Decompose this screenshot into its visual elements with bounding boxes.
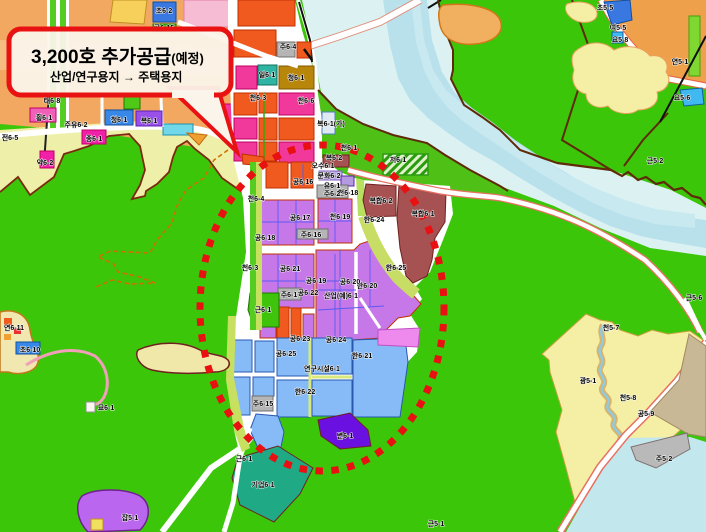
svg-text:근5-2: 근5-2 <box>647 157 664 165</box>
svg-text:일6-1: 일6-1 <box>259 70 276 79</box>
svg-text:주6-4: 주6-4 <box>280 43 297 51</box>
svg-text:공6-24: 공6-24 <box>326 336 347 344</box>
svg-text:천6-3: 천6-3 <box>242 263 259 272</box>
svg-text:오수6-1: 오수6-1 <box>312 162 335 170</box>
svg-text:초5-5: 초5-5 <box>597 3 614 12</box>
svg-text:한6-22: 한6-22 <box>295 387 316 396</box>
svg-text:전6-5: 전6-5 <box>2 133 19 142</box>
svg-text:공5-9: 공5-9 <box>638 410 655 418</box>
svg-text:연5-1: 연5-1 <box>672 57 689 66</box>
svg-text:주6-15: 주6-15 <box>253 400 274 408</box>
svg-text:공6-16: 공6-16 <box>293 178 314 186</box>
svg-text:초6-2: 초6-2 <box>156 6 173 15</box>
svg-text:청6-1: 청6-1 <box>111 115 128 124</box>
svg-text:광5-1: 광5-1 <box>580 376 597 385</box>
svg-text:요5-6: 요5-6 <box>674 94 691 102</box>
svg-text:주5-2: 주5-2 <box>656 455 673 463</box>
svg-text:공6-18: 공6-18 <box>255 234 276 242</box>
svg-text:산업/연구용지 → 주택용지: 산업/연구용지 → 주택용지 <box>50 69 182 84</box>
svg-text:공6-23: 공6-23 <box>290 335 311 343</box>
svg-text:공6-20: 공6-20 <box>340 278 361 286</box>
svg-text:저6-1: 저6-1 <box>390 155 407 164</box>
svg-text:공6-21: 공6-21 <box>280 265 301 273</box>
svg-text:연6-11: 연6-11 <box>4 323 24 332</box>
svg-text:천5-8: 천5-8 <box>620 393 637 402</box>
svg-text:천6-19: 천6-19 <box>330 212 351 221</box>
svg-text:여5-5: 여5-5 <box>610 23 627 32</box>
svg-text:공6-22: 공6-22 <box>298 289 319 297</box>
svg-text:잡5-1: 잡5-1 <box>122 513 139 522</box>
svg-text:주유6-2: 주유6-2 <box>65 120 88 129</box>
svg-text:변6-1: 변6-1 <box>337 431 354 440</box>
svg-text:약6-2: 약6-2 <box>37 158 54 167</box>
svg-text:유6-1: 유6-1 <box>324 181 341 190</box>
svg-text:종6-1: 종6-1 <box>86 135 103 143</box>
svg-text:묘6-1: 묘6-1 <box>98 404 115 412</box>
svg-text:천6-1: 천6-1 <box>341 143 358 152</box>
svg-text:기업6-1: 기업6-1 <box>252 480 275 489</box>
svg-text:복합6-1: 복합6-1 <box>412 209 435 218</box>
svg-text:천6-4: 천6-4 <box>248 194 265 203</box>
svg-text:산업(예)6-1: 산업(예)6-1 <box>324 291 358 300</box>
svg-text:공6-25: 공6-25 <box>276 350 297 358</box>
svg-text:천6-18: 천6-18 <box>338 188 359 197</box>
svg-text:공6-17: 공6-17 <box>290 214 311 222</box>
svg-text:천5-7: 천5-7 <box>603 323 620 332</box>
svg-text:청6-1: 청6-1 <box>288 73 305 82</box>
svg-text:횡6-1: 횡6-1 <box>36 113 53 122</box>
svg-text:한6-21: 한6-21 <box>352 351 373 360</box>
svg-text:공6-19: 공6-19 <box>306 277 327 285</box>
svg-text:천6-3: 천6-3 <box>250 93 267 102</box>
svg-text:근5-1: 근5-1 <box>428 520 445 528</box>
svg-text:복6-1(가): 복6-1(가) <box>317 119 345 128</box>
svg-text:주6-2: 주6-2 <box>324 190 341 198</box>
svg-text:천6-6: 천6-6 <box>298 96 315 105</box>
svg-text:주6-1: 주6-1 <box>281 291 298 299</box>
svg-text:초6-10: 초6-10 <box>20 345 41 354</box>
svg-text:연구시설6-1: 연구시설6-1 <box>304 364 340 373</box>
svg-text:한6-25: 한6-25 <box>386 263 407 272</box>
svg-text:주6-16: 주6-16 <box>301 231 322 239</box>
svg-text:한6-24: 한6-24 <box>364 215 385 224</box>
svg-text:복합6-2: 복합6-2 <box>370 196 393 205</box>
svg-text:근5-6: 근5-6 <box>686 294 703 302</box>
svg-text:문화6-2: 문화6-2 <box>318 171 341 180</box>
svg-text:복6-2: 복6-2 <box>326 153 343 162</box>
svg-text:근6-1: 근6-1 <box>236 455 253 463</box>
svg-text:근6-1: 근6-1 <box>255 306 272 314</box>
svg-text:요5-8: 요5-8 <box>612 36 629 44</box>
svg-text:복6-1: 복6-1 <box>141 116 158 125</box>
